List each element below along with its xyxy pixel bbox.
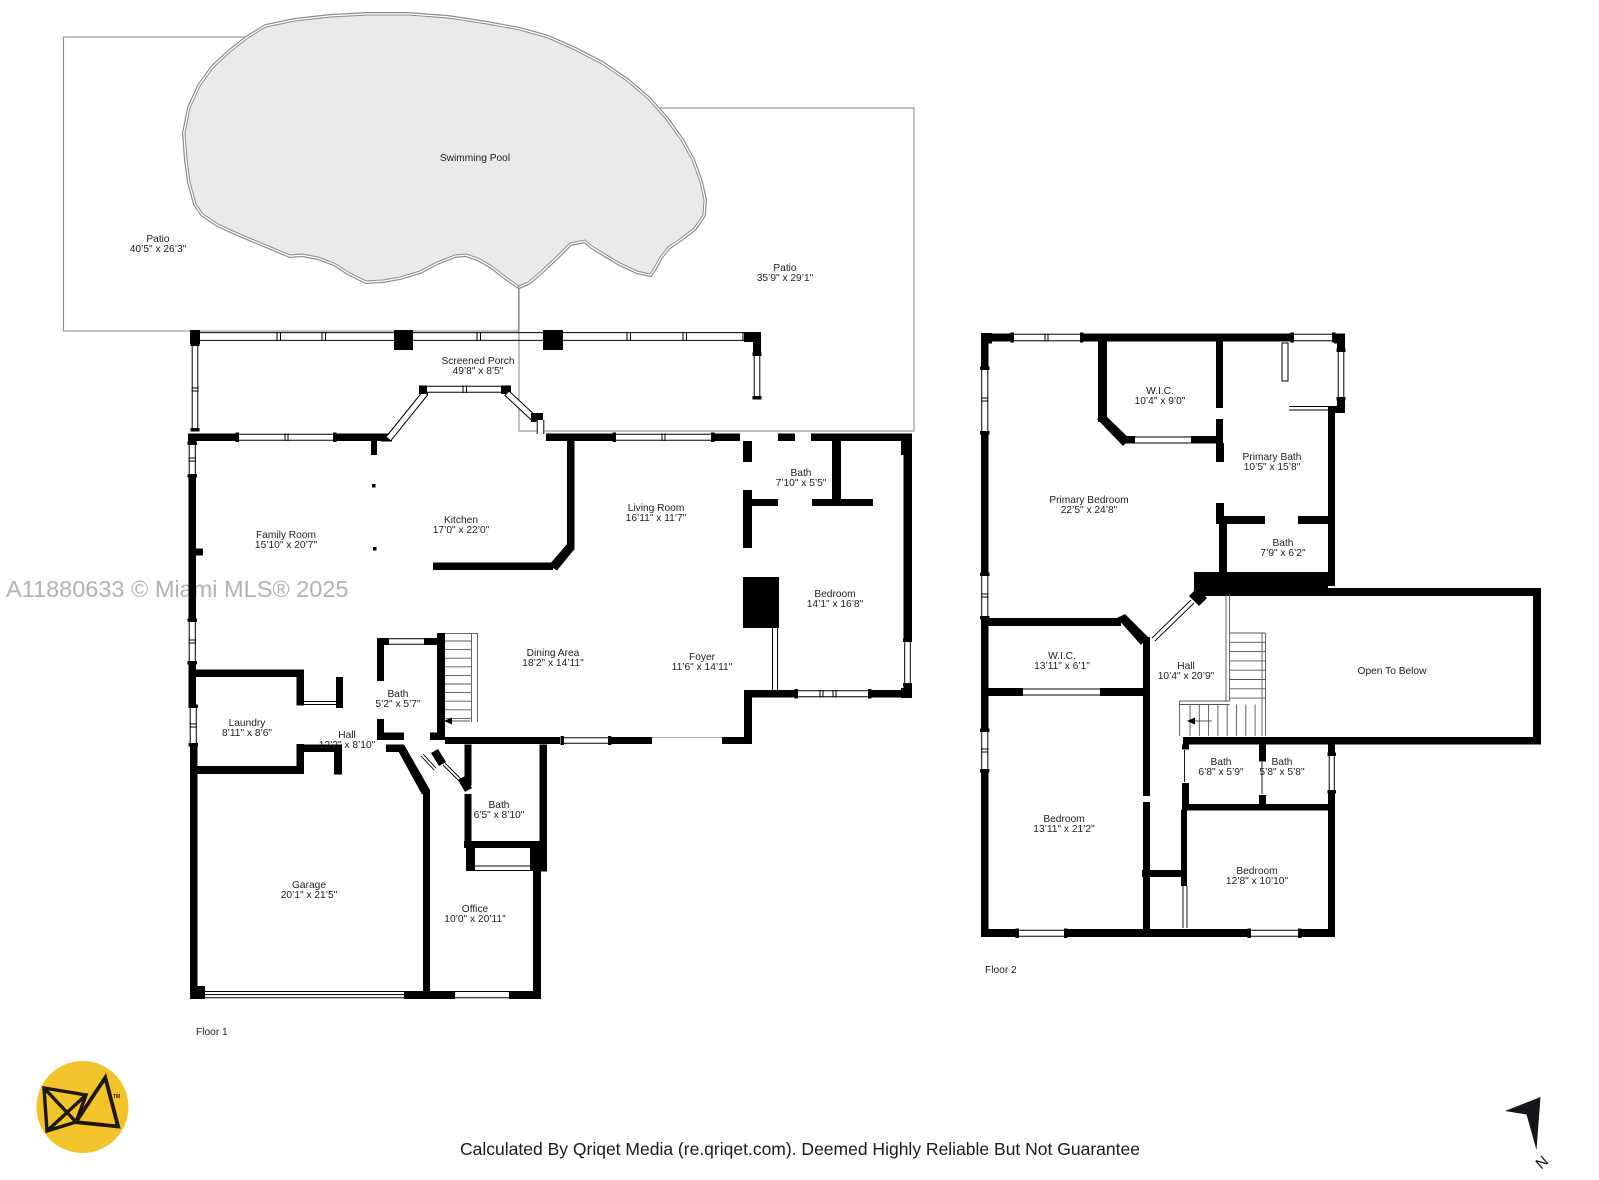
svg-text:16’11" x 11’7": 16’11" x 11’7" (626, 513, 687, 524)
svg-text:11’6" x 14’11": 11’6" x 14’11" (672, 662, 733, 673)
svg-text:40’5" x 26’3": 40’5" x 26’3" (130, 244, 187, 255)
svg-text:7’10" x 5’5": 7’10" x 5’5" (776, 478, 827, 489)
svg-text:Floor 1: Floor 1 (196, 1027, 228, 1038)
svg-text:12’2" x 8’10": 12’2" x 8’10" (319, 740, 376, 751)
svg-text:8’11" x 8’6": 8’11" x 8’6" (222, 728, 272, 739)
svg-text:13’11" x 6’1": 13’11" x 6’1" (1034, 661, 1090, 672)
svg-text:6’8" x 5’9": 6’8" x 5’9" (1198, 767, 1244, 778)
svg-text:13’11" x 21’2": 13’11" x 21’2" (1033, 824, 1095, 835)
svg-text:17’0" x 22’0": 17’0" x 22’0" (433, 525, 490, 536)
svg-text:Calculated By Qriqet Media (re: Calculated By Qriqet Media (re.qriqet.co… (460, 1139, 1140, 1159)
svg-text:Floor 2: Floor 2 (985, 965, 1017, 976)
svg-text:18’2" x 14’11": 18’2" x 14’11" (522, 658, 584, 669)
svg-text:7’9" x 6’2": 7’9" x 6’2" (1260, 548, 1306, 559)
svg-text:Open To Below: Open To Below (1358, 666, 1428, 677)
svg-text:49’8" x 8’5": 49’8" x 8’5" (453, 366, 504, 377)
svg-text:A11880633 © Miami MLS® 2025: A11880633 © Miami MLS® 2025 (6, 576, 349, 602)
svg-text:5’8" x 5’8": 5’8" x 5’8" (1259, 767, 1305, 778)
svg-text:5’2" x 5’7": 5’2" x 5’7" (375, 699, 421, 710)
svg-text:35’9" x 29’1": 35’9" x 29’1" (757, 273, 814, 284)
svg-text:15’10" x 20’7": 15’10" x 20’7" (255, 540, 318, 551)
svg-text:14’1" x 16’8": 14’1" x 16’8" (807, 599, 864, 610)
svg-text:Swimming Pool: Swimming Pool (440, 153, 510, 164)
svg-text:20’1" x 21’5": 20’1" x 21’5" (281, 890, 338, 901)
svg-text:10’4" x 9’0": 10’4" x 9’0" (1135, 396, 1186, 407)
svg-text:10’4" x 20’9": 10’4" x 20’9" (1158, 671, 1215, 682)
svg-text:6’5" x 8’10": 6’5" x 8’10" (474, 810, 525, 821)
svg-text:10’0" x 20’11": 10’0" x 20’11" (444, 914, 506, 925)
svg-text:22’5" x 24’8": 22’5" x 24’8" (1061, 505, 1118, 516)
svg-text:12’8" x 10’10": 12’8" x 10’10" (1226, 876, 1289, 887)
svg-text:10’5" x 15’8": 10’5" x 15’8" (1244, 462, 1301, 473)
svg-text:TM: TM (113, 1094, 120, 1100)
